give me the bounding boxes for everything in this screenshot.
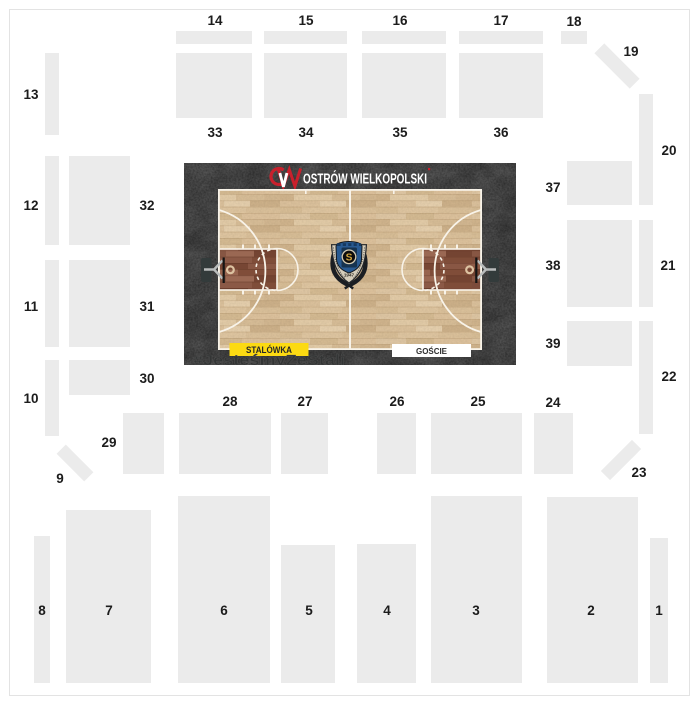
svg-text:S: S xyxy=(346,253,353,264)
svg-text:OSTRÓW WIELKOPOLSKI: OSTRÓW WIELKOPOLSKI xyxy=(303,170,427,188)
svg-text:1947: 1947 xyxy=(344,273,355,278)
svg-text:GOŚCIE: GOŚCIE xyxy=(416,345,448,356)
svg-text:#JesteśmyZeStali: #JesteśmyZeStali xyxy=(193,352,345,365)
